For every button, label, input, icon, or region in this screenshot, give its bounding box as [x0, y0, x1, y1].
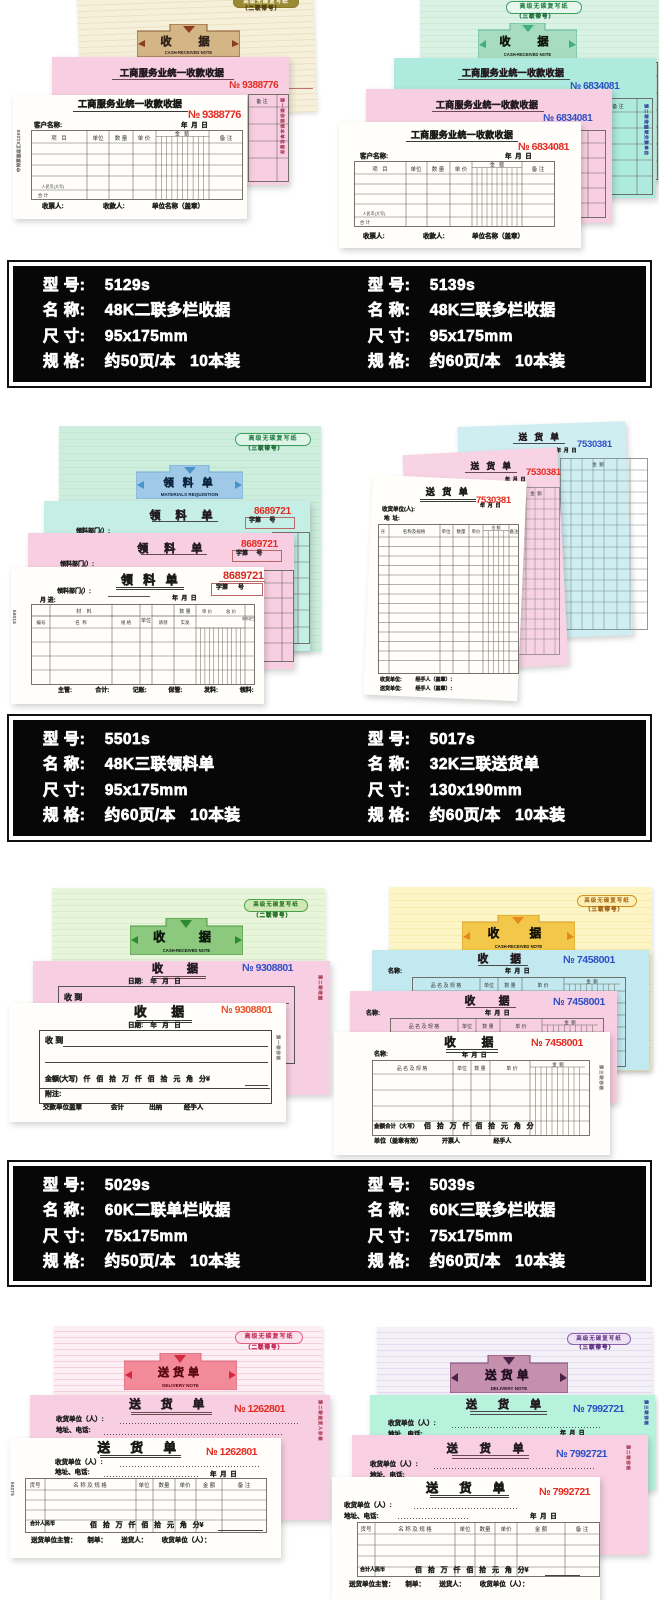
- svg-text:MATERIALS REQUISITION: MATERIALS REQUISITION: [161, 492, 219, 497]
- svg-text:品 名 及 规 格: 品 名 及 规 格: [431, 982, 462, 989]
- svg-text:数量: 数量: [457, 528, 466, 535]
- svg-text:单位: 单位: [459, 1525, 471, 1533]
- svg-text:数 量: 数 量: [504, 982, 515, 989]
- svg-text:序: 序: [381, 528, 385, 534]
- svg-text:金 额: 金 额: [592, 461, 604, 468]
- svg-text:金 额: 金 额: [175, 131, 189, 138]
- svg-text:金 额: 金 额: [552, 1061, 564, 1068]
- svg-text:货号: 货号: [360, 1525, 372, 1533]
- svg-text:备注: 备注: [510, 528, 519, 535]
- svg-text:单价: 单价: [472, 528, 481, 535]
- svg-text:金 额: 金 额: [203, 1481, 216, 1489]
- svg-text:单 价: 单 价: [537, 982, 548, 989]
- svg-text:数 量: 数 量: [432, 165, 445, 173]
- svg-text:项 目: 项 目: [51, 135, 67, 142]
- svg-text:人民币(大写): 人民币(大写): [363, 210, 386, 216]
- svg-text:收 据: 收 据: [488, 926, 549, 940]
- svg-text:收 据: 收 据: [160, 34, 216, 48]
- svg-text:单 价: 单 价: [506, 1065, 517, 1072]
- svg-text:合 计: 合 计: [360, 219, 371, 226]
- svg-text:单价: 单价: [500, 1525, 512, 1533]
- svg-text:CASH-RECEIVED NOTE: CASH-RECEIVED NOTE: [163, 948, 211, 953]
- svg-text:金 额: 金 额: [491, 524, 500, 530]
- svg-text:单位: 单位: [462, 1023, 472, 1030]
- svg-text:名 称 及 规 格: 名 称 及 规 格: [398, 1525, 432, 1533]
- svg-text:金 额: 金 额: [586, 978, 598, 985]
- svg-text:CASH-RECEIVED NOTE: CASH-RECEIVED NOTE: [165, 50, 213, 55]
- svg-text:CASH-RECEIVED NOTE: CASH-RECEIVED NOTE: [504, 52, 552, 57]
- svg-text:请领: 请领: [159, 619, 168, 626]
- svg-text:单位: 单位: [457, 1065, 467, 1072]
- svg-text:金 额: 金 额: [490, 162, 504, 169]
- svg-text:备 注: 备 注: [532, 165, 545, 173]
- svg-text:品 名 及 规 格: 品 名 及 规 格: [397, 1065, 428, 1072]
- svg-text:金 额: 金 额: [564, 1019, 576, 1026]
- svg-text:备 注: 备 注: [220, 134, 233, 142]
- svg-text:材 料: 材 料: [76, 608, 92, 615]
- svg-text:合 计: 合 计: [38, 192, 49, 199]
- svg-text:数 量: 数 量: [115, 134, 128, 142]
- svg-text:单 价: 单 价: [455, 165, 468, 173]
- svg-text:备 注: 备 注: [238, 1481, 251, 1489]
- svg-text:领 料 单: 领 料 单: [163, 476, 215, 489]
- svg-text:收 据: 收 据: [499, 34, 555, 48]
- svg-text:数量: 数量: [479, 1525, 491, 1533]
- svg-text:编号: 编号: [37, 619, 46, 626]
- svg-text:人民币(大写): 人民币(大写): [42, 183, 65, 189]
- svg-text:单位: 单位: [92, 134, 104, 142]
- svg-text:名 称: 名 称: [75, 619, 87, 626]
- svg-text:单位: 单位: [484, 982, 494, 989]
- svg-text:单 价: 单 价: [202, 608, 213, 615]
- svg-text:货号: 货号: [29, 1481, 41, 1489]
- svg-text:实发: 实发: [181, 619, 190, 626]
- svg-text:金 额: 金 额: [535, 1525, 548, 1533]
- svg-text:数 量: 数 量: [482, 1023, 493, 1030]
- svg-text:送货单: 送货单: [157, 1365, 203, 1379]
- svg-text:DELIVERY NOTE: DELIVERY NOTE: [162, 1383, 199, 1388]
- svg-text:单位: 单位: [442, 528, 451, 535]
- svg-text:单位: 单位: [141, 617, 151, 624]
- svg-text:名称及规格: 名称及规格: [403, 528, 426, 535]
- svg-text:收 据: 收 据: [153, 929, 220, 944]
- svg-text:单价: 单价: [179, 1481, 191, 1489]
- svg-text:金 额: 金 额: [530, 490, 542, 497]
- svg-text:数 量: 数 量: [179, 608, 190, 615]
- svg-text:名 称 及 规 格: 名 称 及 规 格: [73, 1481, 107, 1489]
- svg-text:总 价: 总 价: [226, 608, 237, 614]
- svg-text:品 名 及 规 格: 品 名 及 规 格: [409, 1023, 440, 1030]
- svg-text:单位: 单位: [410, 165, 422, 173]
- svg-text:备 注: 备 注: [576, 1525, 589, 1533]
- svg-text:单位: 单位: [138, 1481, 150, 1489]
- svg-text:送货单: 送货单: [484, 1368, 533, 1382]
- svg-text:项 目: 项 目: [372, 166, 388, 173]
- svg-text:材料栏页: 材料栏页: [242, 615, 255, 621]
- svg-text:数量: 数量: [158, 1481, 170, 1489]
- svg-text:DELIVERY NOTE: DELIVERY NOTE: [491, 1386, 528, 1391]
- svg-text:CASH-RECEIVED NOTE: CASH-RECEIVED NOTE: [495, 944, 543, 949]
- svg-text:数 量: 数 量: [474, 1065, 485, 1072]
- svg-text:规 格: 规 格: [121, 619, 132, 626]
- svg-text:备 注: 备 注: [612, 103, 623, 110]
- svg-text:单 价: 单 价: [138, 134, 151, 142]
- svg-text:单 价: 单 价: [515, 1023, 526, 1030]
- svg-text:备 注: 备 注: [256, 98, 267, 105]
